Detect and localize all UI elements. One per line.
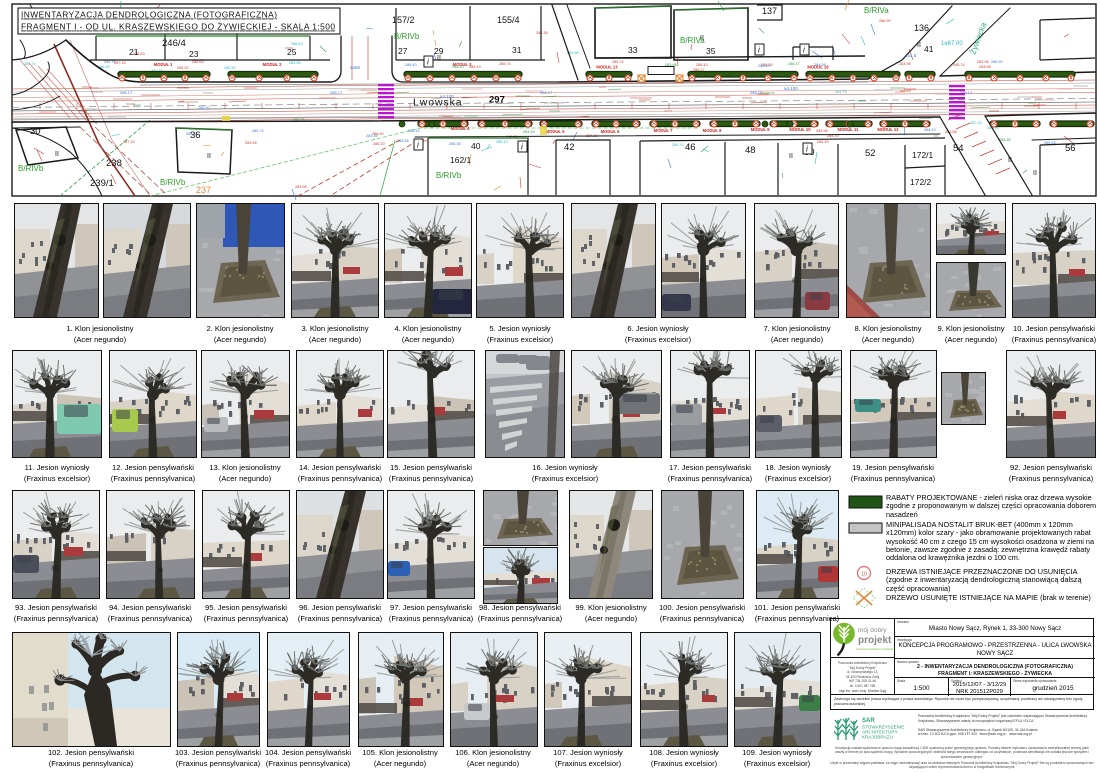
svg-text:MODUŁ 9: MODUŁ 9 <box>751 127 771 132</box>
svg-text:172/2: 172/2 <box>910 177 932 187</box>
svg-text:286.35: 286.35 <box>536 31 548 35</box>
svg-text:MODUŁ 2: MODUŁ 2 <box>263 62 283 67</box>
svg-text:Lwowska: Lwowska <box>413 97 462 109</box>
svg-text:II: II <box>1008 157 1012 164</box>
svg-text:136: 136 <box>914 23 929 33</box>
svg-text:285.20: 285.20 <box>373 142 385 146</box>
svg-text:155/4: 155/4 <box>497 15 520 25</box>
svg-text:56: 56 <box>1065 143 1076 154</box>
svg-text:23: 23 <box>189 49 199 59</box>
svg-text:286.17: 286.17 <box>750 90 763 95</box>
svg-text:40: 40 <box>471 141 481 151</box>
svg-text:283.98: 283.98 <box>899 62 911 66</box>
svg-text:B/RIVb: B/RIVb <box>18 164 44 173</box>
svg-text:MODUŁ 12: MODUŁ 12 <box>877 127 899 132</box>
svg-text:52: 52 <box>865 148 876 159</box>
svg-text:i: i <box>521 143 523 152</box>
svg-text:30: 30 <box>30 126 41 137</box>
svg-text:MODUŁ 8: MODUŁ 8 <box>703 128 723 133</box>
svg-text:i: i <box>427 58 429 67</box>
svg-text:FRAGMENT I - OD UL. KRASZEWSKI: FRAGMENT I - OD UL. KRASZEWSKIEGO DO ŻYW… <box>21 22 335 32</box>
svg-text:285.74: 285.74 <box>499 62 511 66</box>
svg-text:286.90: 286.90 <box>224 66 236 70</box>
svg-text:285.74: 285.74 <box>252 129 264 133</box>
svg-text:MODUŁ 6: MODUŁ 6 <box>601 129 621 134</box>
svg-text:1e67.00: 1e67.00 <box>941 41 963 47</box>
svg-text:B/RIVb: B/RIVb <box>394 32 420 41</box>
svg-text:285.20: 285.20 <box>198 106 210 110</box>
svg-text:21: 21 <box>129 47 139 57</box>
svg-text:II: II <box>917 42 921 49</box>
svg-text:INWENTARYZACJA DENDROLOGICZNA: INWENTARYZACJA DENDROLOGICZNA (FOTOGRAFI… <box>21 10 277 20</box>
svg-text:286.35: 286.35 <box>449 142 461 146</box>
svg-text:2a66: 2a66 <box>350 65 361 70</box>
svg-text:172/1: 172/1 <box>912 150 934 160</box>
svg-text:SAR: SAR <box>862 718 875 724</box>
svg-text:48: 48 <box>745 145 756 156</box>
svg-text:B/RIVa: B/RIVa <box>680 36 705 45</box>
svg-text:286.90: 286.90 <box>879 19 891 23</box>
svg-text:54: 54 <box>953 143 964 154</box>
svg-text:KRAJOBRAZU: KRAJOBRAZU <box>862 735 893 740</box>
svg-text:284.39: 284.39 <box>523 130 535 134</box>
svg-text:283.98: 283.98 <box>289 61 301 65</box>
svg-text:286.17: 286.17 <box>330 90 343 95</box>
svg-text:238: 238 <box>106 158 122 169</box>
svg-text:i: i <box>758 46 760 55</box>
svg-text:42: 42 <box>564 142 575 153</box>
svg-text:MODUŁ 16: MODUŁ 16 <box>807 65 829 70</box>
svg-text:286.43: 286.43 <box>405 63 417 67</box>
svg-text:i: i <box>806 145 808 154</box>
svg-text:II: II <box>1033 170 1037 177</box>
svg-text:33: 33 <box>628 45 638 55</box>
svg-text:MODUŁ 7: MODUŁ 7 <box>654 128 674 133</box>
svg-text:B/RIVa: B/RIVa <box>864 6 889 15</box>
svg-text:285.63: 285.63 <box>758 64 770 68</box>
svg-text:MODUŁ 10: MODUŁ 10 <box>789 127 811 132</box>
svg-text:286.43: 286.43 <box>924 128 936 132</box>
svg-text:287.15: 287.15 <box>123 140 135 144</box>
svg-text:MODUŁ 11: MODUŁ 11 <box>838 127 860 132</box>
svg-text:297: 297 <box>489 95 505 106</box>
svg-text:157/2: 157/2 <box>392 15 415 25</box>
svg-text:137: 137 <box>762 6 777 16</box>
svg-text:286.90: 286.90 <box>372 132 384 136</box>
svg-text:10: 10 <box>861 572 867 578</box>
svg-text:pracownia architektury krajobr: pracownia architektury krajobrazu <box>856 647 895 651</box>
svg-text:286.17: 286.17 <box>540 90 553 95</box>
svg-text:41: 41 <box>924 44 934 54</box>
svg-text:MODUŁ 1: MODUŁ 1 <box>154 62 174 67</box>
svg-text:286.43: 286.43 <box>496 140 508 144</box>
svg-text:286.17: 286.17 <box>788 62 800 66</box>
svg-text:287.15: 287.15 <box>114 61 126 65</box>
svg-text:283.98: 283.98 <box>979 65 991 69</box>
svg-text:284.39: 284.39 <box>817 140 829 144</box>
svg-text:286.90: 286.90 <box>991 60 1003 64</box>
svg-text:237: 237 <box>196 185 211 195</box>
svg-text:239/1: 239/1 <box>90 178 114 189</box>
svg-text:36: 36 <box>190 130 201 141</box>
svg-text:285.74: 285.74 <box>953 63 965 67</box>
svg-text:II: II <box>55 151 59 158</box>
svg-text:MODUŁ 3: MODUŁ 3 <box>453 62 473 67</box>
svg-text:285.74: 285.74 <box>672 143 684 147</box>
svg-text:i: i <box>803 46 805 55</box>
svg-text:MODUŁ 4: MODUŁ 4 <box>451 126 471 131</box>
svg-text:283.98: 283.98 <box>295 185 307 189</box>
svg-text:285.74: 285.74 <box>612 60 624 64</box>
svg-text:mój dobry: mój dobry <box>858 627 887 634</box>
svg-text:31: 31 <box>512 45 522 55</box>
svg-text:II: II <box>789 153 793 160</box>
svg-text:286.43: 286.43 <box>291 42 303 46</box>
svg-text:a4.100: a4.100 <box>784 86 798 91</box>
svg-text:284.75: 284.75 <box>835 90 847 94</box>
svg-text:162/1: 162/1 <box>450 155 472 165</box>
svg-text:284.58: 284.58 <box>945 130 957 134</box>
svg-text:II: II <box>207 153 211 160</box>
svg-text:II: II <box>437 55 441 62</box>
svg-text:MODUŁ 5: MODUŁ 5 <box>546 129 566 134</box>
svg-text:285.20: 285.20 <box>177 66 189 70</box>
svg-text:27: 27 <box>398 46 408 56</box>
svg-text:283.98: 283.98 <box>816 129 828 133</box>
svg-text:287.15: 287.15 <box>970 121 982 125</box>
svg-text:283.98: 283.98 <box>977 60 989 64</box>
svg-text:283.98: 283.98 <box>245 141 257 145</box>
svg-text:MODUŁ 13: MODUŁ 13 <box>596 65 618 70</box>
svg-text:286.17: 286.17 <box>120 90 133 95</box>
svg-text:a4.100: a4.100 <box>440 94 454 99</box>
svg-text:286.43: 286.43 <box>696 63 708 67</box>
svg-text:35: 35 <box>706 46 716 56</box>
svg-text:i: i <box>417 141 419 150</box>
svg-text:246/4: 246/4 <box>162 38 186 49</box>
svg-text:B/RIVb: B/RIVb <box>436 171 462 180</box>
svg-text:46: 46 <box>685 142 696 153</box>
svg-text:25: 25 <box>287 47 297 57</box>
svg-text:projekt: projekt <box>858 635 892 646</box>
svg-text:B/RIVb: B/RIVb <box>160 178 186 187</box>
svg-text:1a1.5: 1a1.5 <box>905 53 917 58</box>
